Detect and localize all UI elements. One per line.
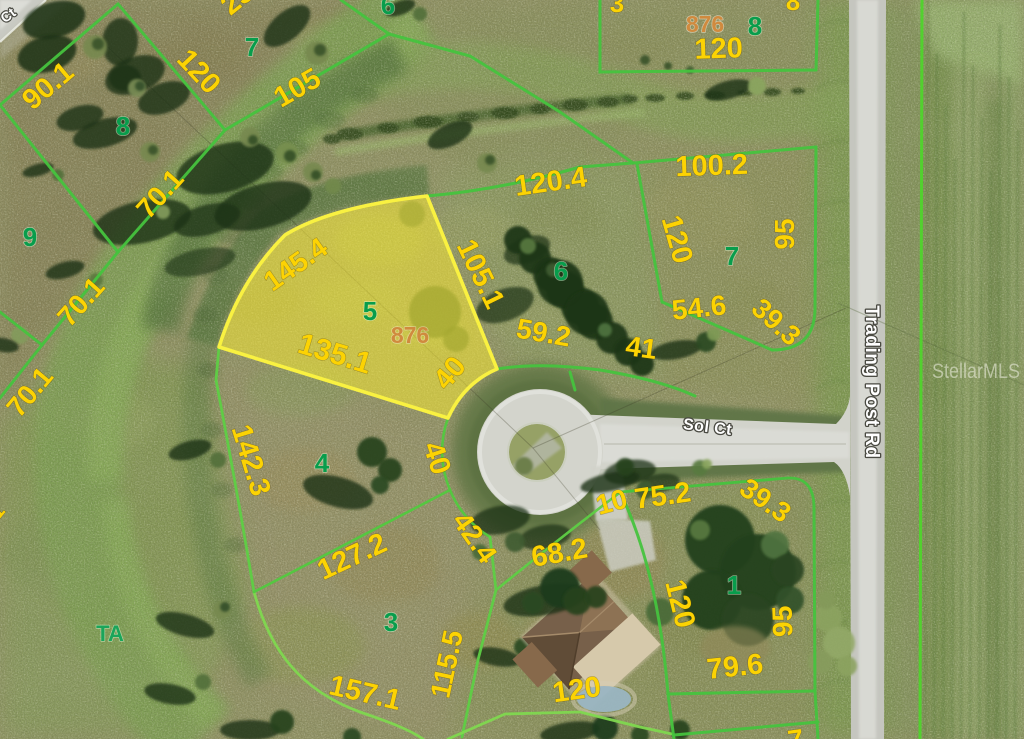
svg-text:3: 3 [384,607,398,637]
svg-text:9: 9 [23,222,37,252]
svg-text:120: 120 [694,32,743,66]
svg-text:1: 1 [727,570,741,600]
svg-text:StellarMLS: StellarMLS [932,360,1020,383]
svg-text:876: 876 [391,322,429,348]
svg-text:54.6: 54.6 [670,289,727,326]
svg-text:7: 7 [725,241,739,271]
svg-text:6: 6 [554,256,568,286]
svg-text:7: 7 [245,32,259,62]
svg-text:8: 8 [116,111,130,141]
svg-text:120: 120 [551,671,603,709]
svg-text:41: 41 [624,330,659,365]
svg-text:4: 4 [315,448,330,478]
svg-text:8: 8 [748,11,762,41]
svg-text:100.2: 100.2 [675,149,749,184]
svg-text:Trading Post Rd: Trading Post Rd [861,305,882,458]
svg-text:95: 95 [769,218,800,249]
svg-text:876: 876 [686,11,724,37]
svg-text:95: 95 [766,605,798,637]
svg-text:TA: TA [96,621,124,646]
svg-text:79.6: 79.6 [705,648,764,686]
svg-text:6: 6 [381,0,395,20]
svg-text:8: 8 [786,0,800,16]
svg-text:5: 5 [363,296,377,326]
svg-text:3: 3 [610,0,624,18]
